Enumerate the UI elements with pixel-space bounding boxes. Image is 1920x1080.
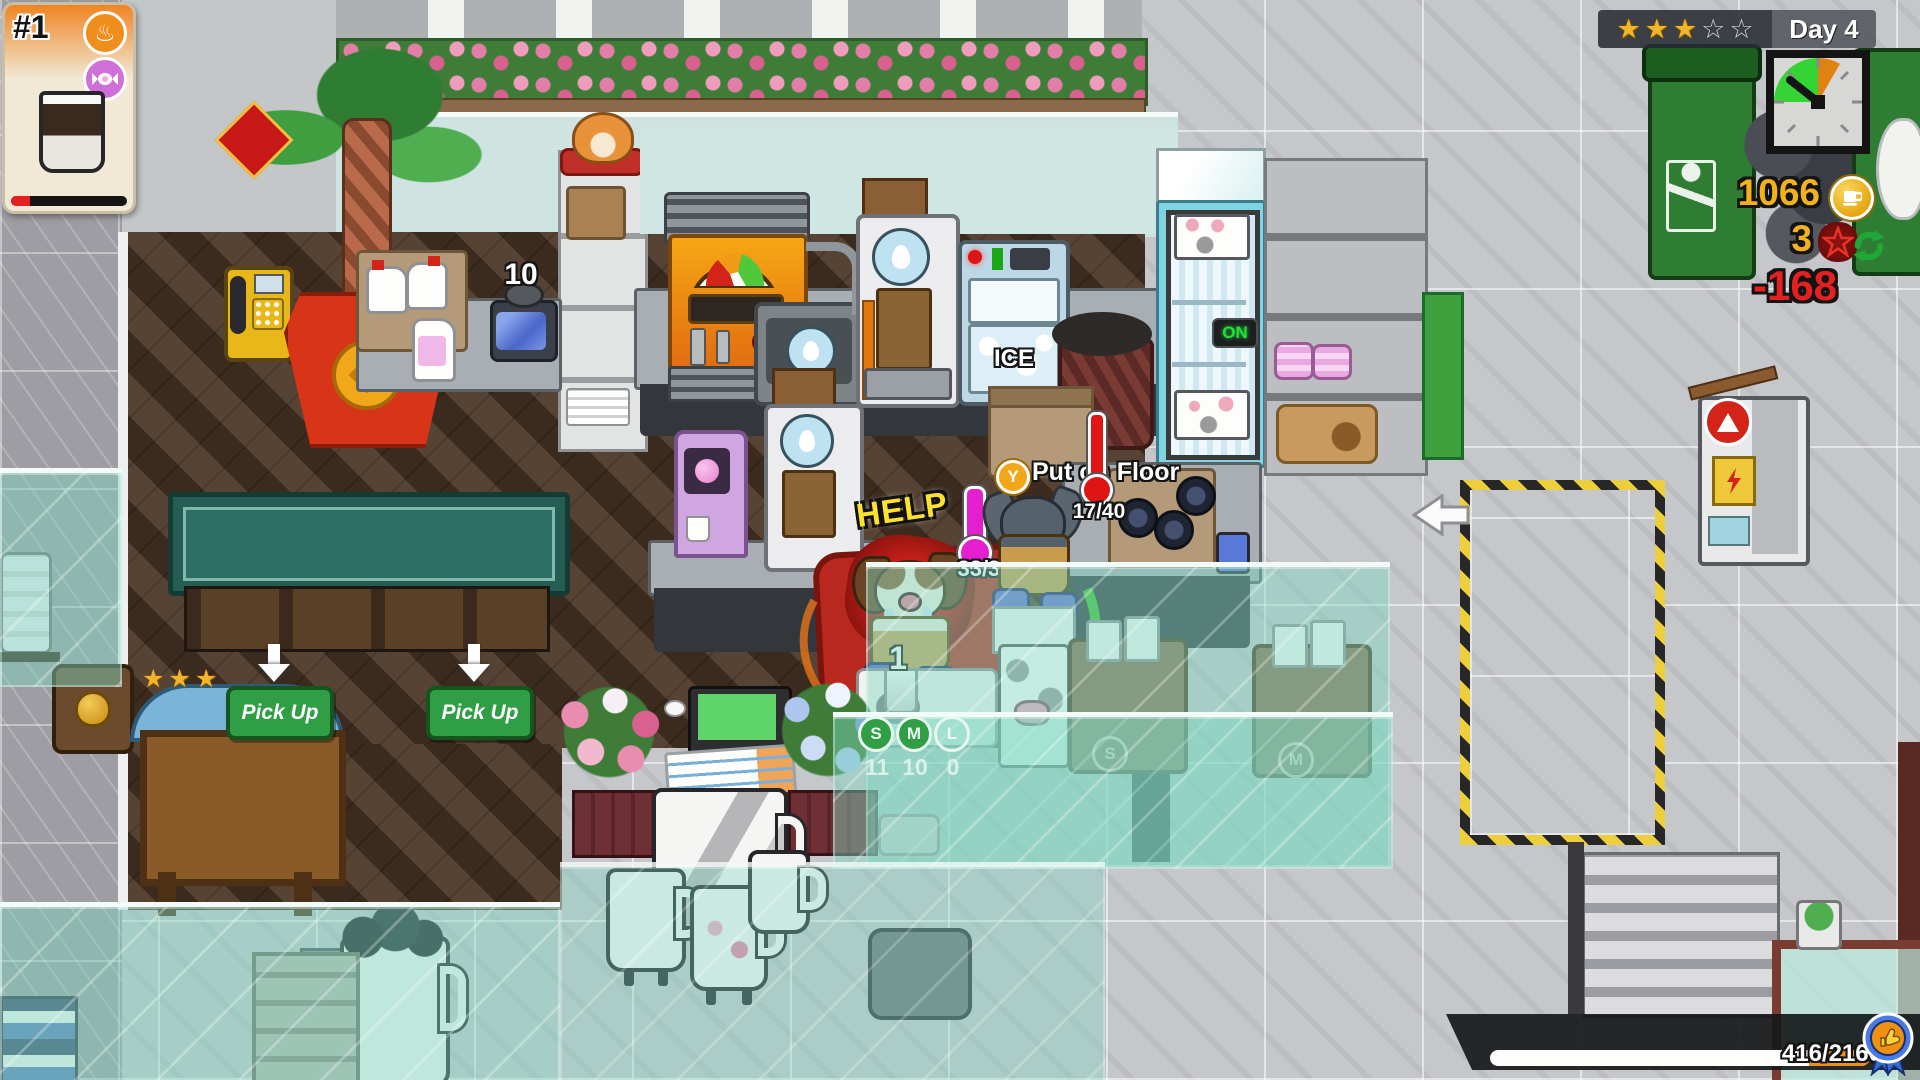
teal-prep-table[interactable] bbox=[168, 492, 570, 596]
star-4-icon: ☆ bbox=[1701, 14, 1725, 45]
size-s-circle: S bbox=[858, 716, 894, 752]
day-counter: Day 4 bbox=[1772, 10, 1876, 48]
goose bbox=[1876, 118, 1920, 220]
pickup-sign-a: Pick Up bbox=[226, 686, 334, 740]
dispenser-b-door bbox=[782, 470, 836, 538]
pink-roll-2 bbox=[1312, 344, 1352, 380]
jug-cap-2 bbox=[428, 256, 440, 266]
order-coffee-cup-icon bbox=[39, 91, 105, 173]
hazard-triangle-icon bbox=[1717, 413, 1739, 432]
drop-icon bbox=[892, 245, 910, 269]
phone-keypad bbox=[252, 298, 284, 330]
reputation-badge-icon bbox=[1860, 1012, 1916, 1076]
steam-pipe bbox=[690, 328, 706, 366]
syrup-cup bbox=[686, 516, 710, 542]
paper-bag bbox=[566, 186, 626, 240]
milk-jug bbox=[366, 266, 408, 314]
fridge-shelf-line2 bbox=[1172, 362, 1246, 367]
pickup-arrow-b bbox=[458, 644, 490, 682]
dispenser-a-door bbox=[876, 288, 932, 370]
fridge-shelf-line bbox=[1172, 300, 1246, 305]
pink-roll bbox=[1274, 342, 1314, 380]
hot-tag-icon: ♨ bbox=[83, 11, 127, 55]
size-s-count: 11 bbox=[862, 754, 892, 781]
money-delta: -168 bbox=[1720, 262, 1870, 310]
order-card[interactable]: #1 ♨ bbox=[2, 2, 136, 214]
pos-mouse[interactable] bbox=[664, 700, 686, 717]
size-l-label: L bbox=[947, 724, 957, 744]
star-1-icon: ★ bbox=[1616, 14, 1640, 45]
faucet bbox=[806, 242, 861, 315]
floor-prompt-count: 17/40 bbox=[1044, 500, 1154, 524]
ice-green-bar bbox=[992, 248, 1003, 270]
star-5-icon: ☆ bbox=[1729, 14, 1753, 45]
milk-jug-2 bbox=[406, 262, 448, 310]
game-viewport: ICE ON 10 bbox=[0, 0, 1920, 1080]
drop-icon bbox=[799, 430, 815, 452]
syrup-jug-label bbox=[418, 336, 446, 366]
coin-icon bbox=[1830, 176, 1874, 220]
pickup-sign-b: Pick Up bbox=[426, 686, 534, 740]
green-pillar bbox=[1422, 292, 1464, 460]
stairs[interactable] bbox=[1582, 852, 1780, 1018]
size-l-count: 0 bbox=[938, 754, 968, 781]
coin-amount: 1066 bbox=[1690, 172, 1820, 214]
pink-planter bbox=[572, 790, 658, 858]
bread-loaf bbox=[1276, 404, 1378, 464]
stair-railing bbox=[1568, 842, 1584, 1014]
y-button-label: Y bbox=[1007, 467, 1018, 487]
pickup-arrow-a bbox=[258, 644, 290, 682]
day-clock bbox=[1766, 50, 1870, 154]
hazard-sign-icon bbox=[1704, 398, 1752, 446]
size-m-label: M bbox=[907, 724, 921, 744]
hot-water-badge-icon bbox=[872, 228, 930, 286]
pentagram-count: 3 bbox=[1740, 218, 1812, 260]
cabinet-label bbox=[1708, 516, 1750, 546]
bottom-left-glass-room bbox=[0, 902, 560, 1080]
order-number: #1 bbox=[13, 9, 49, 46]
floor-prompt-label: Put on Floor bbox=[1032, 458, 1252, 487]
water-badge-icon bbox=[780, 414, 834, 468]
size-s-label: S bbox=[870, 724, 881, 744]
size-m-count: 10 bbox=[900, 754, 930, 781]
steam-pipe-2 bbox=[716, 330, 730, 364]
counter-plant bbox=[1796, 900, 1842, 950]
reading-benches bbox=[336, 0, 1142, 40]
size-m-circle: M bbox=[896, 716, 932, 752]
pink-bouquet bbox=[548, 680, 670, 796]
trash-contents bbox=[1052, 312, 1152, 356]
drink-can-2 bbox=[1154, 510, 1194, 550]
star-rating: ★ ★ ★ ☆ ☆ bbox=[1598, 10, 1772, 48]
pickup-sign-a-label: Pick Up bbox=[241, 701, 318, 725]
fridge-power-label: ON bbox=[1222, 323, 1248, 343]
ice-red-light bbox=[968, 250, 982, 264]
drop-icon bbox=[803, 341, 819, 361]
ice-bin: ICE bbox=[968, 324, 1060, 394]
left-glass-panel bbox=[0, 468, 122, 687]
menu-board[interactable] bbox=[140, 730, 346, 886]
bell-icon bbox=[75, 691, 111, 727]
ice-window bbox=[1010, 248, 1050, 270]
day-label: Day 4 bbox=[1789, 14, 1858, 45]
milk-cartons-bottom bbox=[1174, 390, 1250, 440]
plate-stack bbox=[566, 388, 630, 426]
drip-tray bbox=[864, 368, 952, 400]
recycle-icon bbox=[1850, 228, 1888, 264]
table-drawers bbox=[184, 586, 550, 652]
ice-chute bbox=[968, 278, 1060, 324]
jug-cap bbox=[372, 260, 384, 270]
utility-cabinet-door bbox=[1752, 400, 1798, 554]
bottom-center-glass-room bbox=[560, 862, 1105, 1080]
electric-warning-plate bbox=[1712, 456, 1756, 506]
pressure-gauge-icon bbox=[684, 242, 784, 288]
phone-screen bbox=[254, 274, 284, 294]
milk-cartons-top bbox=[1174, 214, 1250, 260]
phone-handset bbox=[230, 276, 246, 334]
pos-screen bbox=[698, 694, 776, 740]
ice-label: ICE bbox=[994, 345, 1034, 373]
syrup-can-window bbox=[496, 312, 546, 350]
direction-arrow-left-icon bbox=[1412, 494, 1470, 536]
syrup-ball bbox=[695, 459, 719, 483]
syrup-can-count: 10 bbox=[478, 258, 564, 292]
patience-bar bbox=[11, 196, 127, 206]
fridge-power-badge: ON bbox=[1212, 318, 1258, 348]
patience-bar-fill bbox=[11, 196, 30, 206]
syrup-machine-window bbox=[684, 448, 730, 494]
size-l-circle: L bbox=[934, 716, 970, 752]
hamster[interactable] bbox=[572, 112, 634, 164]
pickup-sign-b-label: Pick Up bbox=[441, 701, 518, 725]
lightning-icon bbox=[1725, 468, 1743, 494]
box-flap bbox=[988, 386, 1094, 408]
y-button-prompt[interactable]: Y bbox=[996, 460, 1030, 494]
construction-zone-inner bbox=[1470, 490, 1655, 835]
star-3-icon: ★ bbox=[1673, 14, 1697, 45]
star-2-icon: ★ bbox=[1645, 14, 1669, 45]
